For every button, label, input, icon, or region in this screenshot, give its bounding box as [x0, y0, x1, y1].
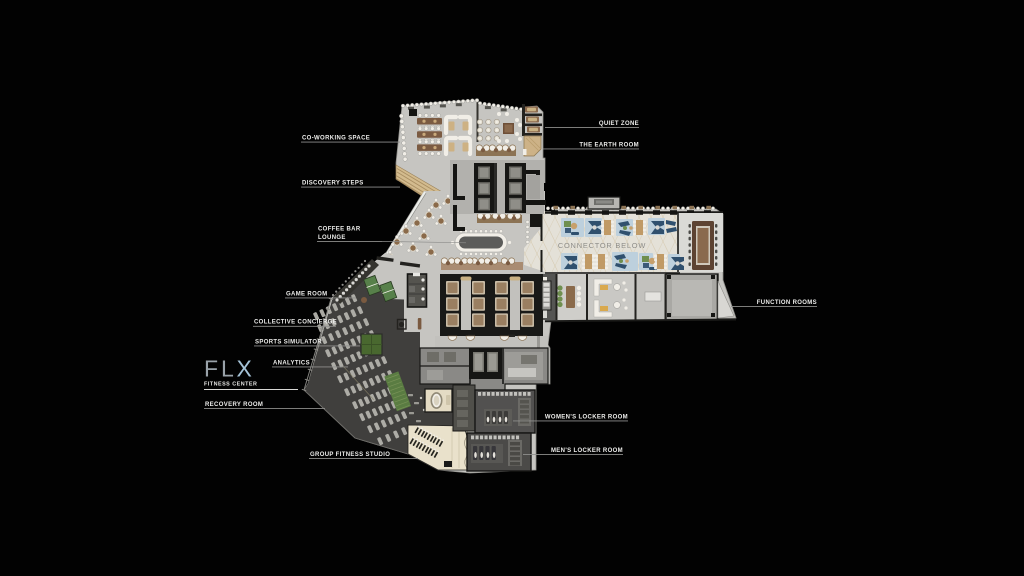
svg-text:CO-WORKING SPACE: CO-WORKING SPACE	[302, 136, 370, 142]
svg-text:CONNECTOR BELOW: CONNECTOR BELOW	[558, 241, 646, 250]
svg-text:WOMEN'S LOCKER ROOM: WOMEN'S LOCKER ROOM	[545, 414, 628, 420]
svg-text:FL: FL	[204, 356, 237, 382]
svg-text:GROUP FITNESS STUDIO: GROUP FITNESS STUDIO	[310, 452, 390, 458]
svg-text:THE EARTH ROOM: THE EARTH ROOM	[579, 142, 639, 148]
svg-text:GAME ROOM: GAME ROOM	[286, 291, 327, 297]
svg-text:FUNCTION ROOMS: FUNCTION ROOMS	[757, 300, 817, 306]
svg-text:ANALYTICS: ANALYTICS	[273, 360, 310, 366]
svg-text:MEN'S LOCKER ROOM: MEN'S LOCKER ROOM	[551, 448, 623, 454]
svg-text:LOUNGE: LOUNGE	[318, 235, 346, 241]
svg-text:COFFEE BAR: COFFEE BAR	[318, 227, 361, 233]
svg-text:SPORTS SIMULATOR: SPORTS SIMULATOR	[255, 339, 322, 345]
svg-text:RECOVERY ROOM: RECOVERY ROOM	[205, 402, 263, 408]
svg-text:DISCOVERY STEPS: DISCOVERY STEPS	[302, 181, 364, 187]
svg-text:COLLECTIVE CONCIERGE: COLLECTIVE CONCIERGE	[254, 320, 337, 326]
svg-text:X: X	[237, 356, 252, 382]
svg-text:FITNESS CENTER: FITNESS CENTER	[204, 382, 257, 388]
svg-text:QUIET ZONE: QUIET ZONE	[599, 121, 639, 127]
